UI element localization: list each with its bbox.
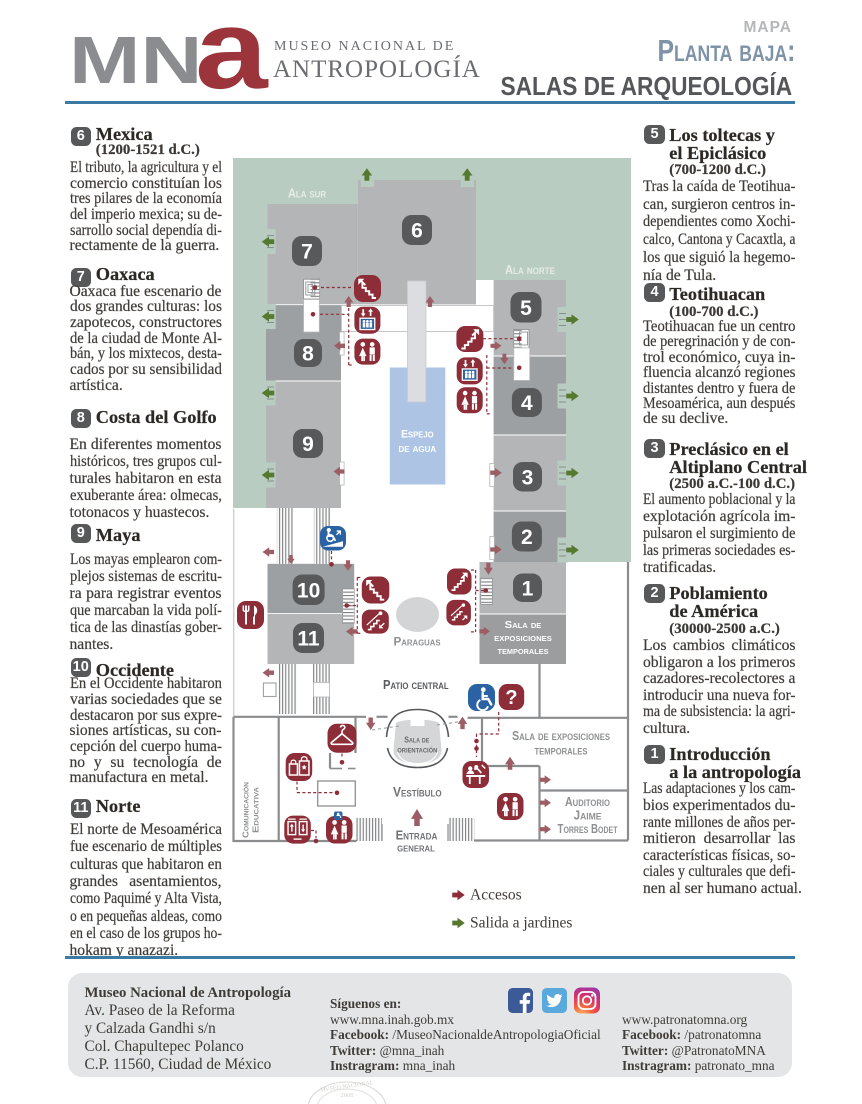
svg-text:Salida a jardines: Salida a jardines: [470, 915, 572, 932]
svg-text:Sala de: Sala de: [505, 619, 542, 631]
svg-text:7: 7: [301, 241, 313, 264]
svg-text:Torres Bodet: Torres Bodet: [558, 822, 618, 836]
svg-text:Patio central: Patio central: [383, 677, 449, 692]
svg-text:9: 9: [302, 433, 314, 456]
svg-text:temporales: temporales: [535, 744, 588, 758]
svg-text:Ala norte: Ala norte: [505, 263, 555, 277]
svg-text:1: 1: [522, 577, 534, 600]
svg-text:Espejo: Espejo: [401, 429, 434, 441]
svg-text:Auditorio: Auditorio: [565, 795, 610, 809]
svg-text:· 2008 ·: · 2008 ·: [337, 1092, 358, 1099]
svg-text:Paraguas: Paraguas: [394, 635, 442, 649]
svg-text:Accesos: Accesos: [470, 887, 522, 904]
svg-text:general: general: [397, 843, 435, 855]
svg-text:Vestíbulo: Vestíbulo: [393, 785, 442, 800]
svg-text:3: 3: [522, 466, 534, 489]
svg-text:8: 8: [302, 343, 314, 366]
svg-text:Comunicación: Comunicación: [241, 782, 251, 838]
svg-text:10: 10: [297, 579, 320, 602]
svg-text:?: ?: [505, 687, 517, 709]
svg-text:Jaime: Jaime: [574, 809, 602, 823]
svg-text:Educativa: Educativa: [251, 786, 261, 833]
svg-text:exposiciones: exposiciones: [494, 632, 552, 644]
svg-text:Entrada: Entrada: [396, 829, 438, 843]
svg-text:Ala sur: Ala sur: [288, 187, 326, 201]
svg-text:Sala de exposiciones: Sala de exposiciones: [512, 729, 610, 743]
svg-text:4: 4: [521, 392, 533, 415]
svg-text:orientación: orientación: [397, 746, 437, 755]
svg-text:6: 6: [411, 220, 423, 243]
svg-text:Sala de: Sala de: [404, 736, 429, 745]
svg-text:de agua: de agua: [399, 443, 437, 455]
svg-text:5: 5: [520, 297, 532, 320]
svg-text:2: 2: [521, 526, 533, 549]
svg-text:temporales: temporales: [498, 645, 549, 657]
svg-text:11: 11: [297, 628, 320, 651]
